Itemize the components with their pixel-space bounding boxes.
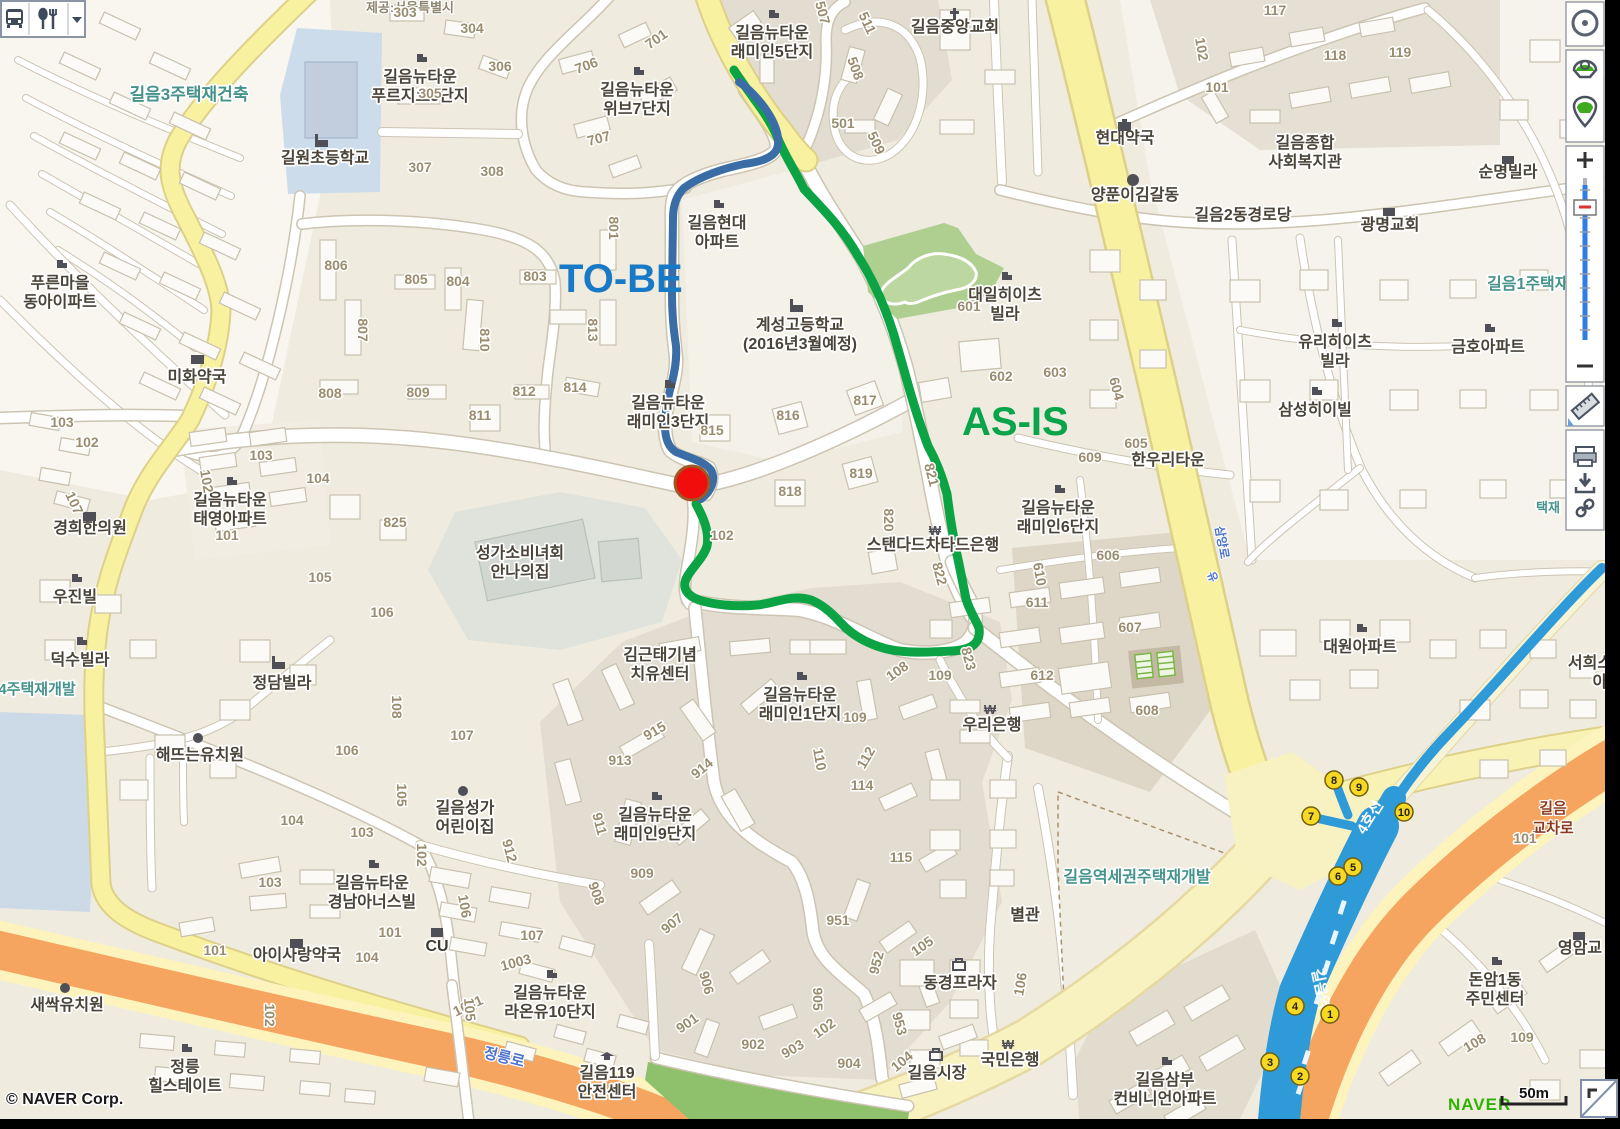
svg-text:612: 612: [1030, 667, 1054, 683]
svg-text:102: 102: [75, 434, 99, 450]
svg-text:904: 904: [837, 1055, 861, 1071]
svg-text:909: 909: [630, 865, 654, 881]
svg-text:816: 816: [776, 407, 800, 423]
svg-text:양푼이김갈동: 양푼이김갈동: [1091, 185, 1180, 204]
svg-text:101: 101: [1513, 830, 1537, 846]
svg-text:501: 501: [831, 115, 855, 131]
svg-text:103: 103: [249, 447, 273, 463]
svg-text:길음뉴타운: 길음뉴타운: [600, 81, 674, 99]
svg-text:307: 307: [408, 159, 432, 175]
svg-text:814: 814: [563, 379, 587, 395]
svg-text:4주택재개발: 4주택재개발: [0, 680, 76, 698]
svg-text:래미인5단지: 래미인5단지: [731, 43, 814, 61]
svg-text:3: 3: [1267, 1057, 1273, 1069]
svg-text:818: 818: [778, 483, 802, 499]
svg-text:109: 109: [928, 667, 952, 683]
svg-text:951: 951: [826, 912, 850, 928]
svg-text:4: 4: [1292, 1001, 1299, 1013]
svg-text:104: 104: [306, 470, 330, 486]
svg-text:806: 806: [324, 257, 348, 273]
svg-text:101: 101: [1205, 79, 1229, 95]
svg-text:807: 807: [355, 318, 371, 342]
svg-text:603: 603: [1043, 364, 1067, 380]
svg-text:래미인1단지: 래미인1단지: [759, 705, 842, 723]
svg-text:103: 103: [350, 824, 374, 840]
svg-text:길음: 길음: [1539, 800, 1567, 817]
svg-text:107: 107: [450, 727, 474, 743]
svg-text:CU: CU: [425, 938, 448, 955]
svg-text:김근태기념: 김근태기념: [623, 645, 697, 664]
svg-text:길음뉴타운: 길음뉴타운: [193, 491, 267, 509]
svg-text:동경프라자: 동경프라자: [923, 974, 997, 992]
svg-text:국민은행: 국민은행: [981, 1051, 1040, 1069]
svg-text:동아이파트: 동아이파트: [23, 293, 97, 311]
svg-text:길음현대: 길음현대: [688, 213, 747, 232]
svg-text:영암교: 영암교: [1558, 938, 1602, 957]
svg-text:광명교회: 광명교회: [1361, 215, 1420, 234]
svg-text:106: 106: [335, 742, 359, 758]
svg-text:새싹유치원: 새싹유치원: [30, 996, 104, 1014]
svg-text:104: 104: [280, 812, 304, 828]
svg-text:101: 101: [378, 924, 402, 940]
svg-text:우리은행: 우리은행: [963, 716, 1022, 734]
svg-text:미화약국: 미화약국: [168, 367, 227, 386]
svg-text:905: 905: [810, 987, 826, 1011]
svg-text:105: 105: [308, 569, 332, 585]
svg-text:810: 810: [477, 328, 493, 352]
svg-text:교차로: 교차로: [1532, 820, 1574, 837]
svg-text:(2016년3월예정): (2016년3월예정): [743, 334, 857, 353]
svg-text:605: 605: [1124, 435, 1148, 451]
svg-text:118: 118: [1324, 47, 1347, 63]
svg-text:치유센터: 치유센터: [631, 665, 690, 683]
svg-text:108: 108: [389, 695, 405, 719]
svg-text:2: 2: [1297, 1071, 1303, 1083]
svg-text:825: 825: [383, 514, 407, 530]
svg-text:102: 102: [262, 1003, 278, 1027]
svg-text:택재: 택재: [1536, 500, 1560, 515]
svg-text:© NAVER Corp.: © NAVER Corp.: [6, 1091, 123, 1108]
svg-text:804: 804: [446, 273, 470, 289]
svg-text:119: 119: [1389, 44, 1412, 60]
svg-text:820: 820: [881, 508, 897, 532]
svg-text:라온유10단지: 라온유10단지: [504, 1003, 595, 1021]
svg-text:돈암1동: 돈암1동: [1468, 970, 1521, 989]
svg-text:주민센터: 주민센터: [1466, 990, 1525, 1008]
svg-text:808: 808: [318, 385, 342, 401]
svg-text:해뜨는유치원: 해뜨는유치원: [156, 746, 244, 764]
svg-text:115: 115: [890, 849, 913, 865]
svg-text:102: 102: [414, 843, 430, 867]
svg-text:50m: 50m: [1519, 1085, 1549, 1102]
svg-text:길음뉴타운: 길음뉴타운: [631, 394, 705, 412]
svg-text:106: 106: [370, 604, 394, 620]
svg-text:빌라: 빌라: [990, 305, 1020, 323]
svg-text:303: 303: [393, 4, 417, 20]
svg-text:813: 813: [585, 318, 601, 342]
svg-text:안전센터: 안전센터: [578, 1083, 637, 1101]
svg-text:306: 306: [488, 58, 512, 74]
svg-text:811: 811: [469, 407, 492, 423]
svg-text:길음3주택재건축: 길음3주택재건축: [130, 85, 249, 104]
svg-text:래미인6단지: 래미인6단지: [1017, 518, 1100, 536]
svg-text:길음성가: 길음성가: [436, 799, 495, 817]
svg-text:사회복지관: 사회복지관: [1268, 152, 1342, 171]
svg-text:덕수빌라: 덕수빌라: [51, 651, 110, 669]
svg-text:순명빌라: 순명빌라: [1479, 163, 1538, 181]
svg-text:길음뉴타운: 길음뉴타운: [618, 806, 692, 824]
svg-text:117: 117: [1264, 2, 1287, 18]
svg-text:809: 809: [406, 384, 430, 400]
svg-text:길음시장: 길음시장: [908, 1064, 967, 1082]
svg-text:1: 1: [1327, 1009, 1333, 1021]
svg-text:304: 304: [460, 20, 484, 36]
svg-text:815: 815: [700, 422, 724, 438]
svg-text:601: 601: [957, 298, 981, 314]
svg-text:스탠다드차타드은행: 스탠다드차타드은행: [867, 536, 999, 554]
svg-text:AS-IS: AS-IS: [962, 400, 1069, 444]
svg-text:812: 812: [512, 383, 536, 399]
svg-text:5: 5: [1350, 862, 1356, 874]
svg-text:한우리타운: 한우리타운: [1131, 450, 1205, 469]
svg-text:103: 103: [50, 414, 74, 430]
svg-text:길음종합: 길음종합: [1276, 134, 1335, 152]
svg-text:104: 104: [355, 949, 379, 965]
svg-text:308: 308: [480, 163, 504, 179]
svg-text:푸른마을: 푸른마을: [31, 274, 90, 292]
svg-text:정릉: 정릉: [170, 1058, 200, 1076]
svg-text:101: 101: [203, 942, 227, 958]
svg-text:태영아파트: 태영아파트: [193, 510, 267, 528]
svg-text:계성고등학교: 계성고등학교: [756, 315, 845, 334]
svg-text:114: 114: [851, 777, 874, 793]
svg-text:7: 7: [1308, 811, 1314, 823]
svg-text:길음뉴타운: 길음뉴타운: [763, 686, 837, 704]
svg-text:102: 102: [710, 527, 734, 543]
svg-text:10: 10: [1398, 807, 1410, 819]
svg-text:길음삼부: 길음삼부: [1136, 1071, 1195, 1089]
svg-text:금호아파트: 금호아파트: [1451, 338, 1525, 356]
svg-text:삼성히이빌: 삼성히이빌: [1278, 401, 1352, 419]
svg-text:경남아너스빌: 경남아너스빌: [328, 893, 416, 911]
svg-text:103: 103: [258, 874, 282, 890]
svg-text:아파트: 아파트: [695, 233, 739, 251]
svg-text:위브7단지: 위브7단지: [603, 100, 671, 118]
svg-text:길음뉴타운: 길음뉴타운: [735, 24, 809, 42]
svg-text:₩: ₩: [984, 702, 997, 717]
svg-text:길음역세권주택재개발: 길음역세권주택재개발: [1063, 867, 1210, 886]
svg-text:902: 902: [741, 1036, 765, 1052]
svg-text:805: 805: [404, 271, 428, 287]
svg-text:래미인9단지: 래미인9단지: [614, 825, 697, 843]
svg-text:길음뉴타운: 길음뉴타운: [335, 874, 409, 892]
svg-text:길음119: 길음119: [579, 1064, 634, 1082]
svg-text:9: 9: [1356, 782, 1362, 794]
svg-text:819: 819: [849, 465, 873, 481]
svg-text:컨비니언아파트: 컨비니언아파트: [1113, 1090, 1216, 1108]
svg-text:109: 109: [1510, 1029, 1534, 1045]
svg-text:611: 611: [1026, 594, 1049, 610]
svg-text:105: 105: [461, 997, 479, 1022]
svg-text:힐스테이트: 힐스테이트: [148, 1076, 222, 1095]
svg-text:별관: 별관: [1010, 906, 1040, 924]
svg-text:성가소비녀회: 성가소비녀회: [476, 543, 564, 562]
svg-text:우진빌: 우진빌: [53, 588, 97, 606]
svg-text:606: 606: [1096, 547, 1120, 563]
svg-text:길음뉴타운: 길음뉴타운: [513, 984, 587, 1002]
svg-text:105: 105: [394, 783, 410, 807]
svg-text:607: 607: [1118, 619, 1142, 635]
svg-text:305: 305: [418, 85, 442, 101]
svg-text:유리히이츠: 유리히이츠: [1298, 333, 1372, 351]
svg-text:801: 801: [606, 216, 622, 240]
svg-text:8: 8: [1331, 775, 1337, 787]
svg-text:TO-BE: TO-BE: [559, 257, 683, 301]
svg-text:길음2동경로당: 길음2동경로당: [1194, 206, 1291, 224]
svg-text:6: 6: [1335, 871, 1341, 883]
svg-text:101: 101: [215, 527, 239, 543]
svg-text:913: 913: [608, 752, 632, 768]
svg-text:래미인3단지: 래미인3단지: [627, 413, 710, 431]
svg-text:803: 803: [523, 268, 547, 284]
svg-text:길음뉴타운: 길음뉴타운: [383, 68, 457, 86]
svg-text:빌라: 빌라: [1320, 352, 1350, 370]
svg-text:109: 109: [843, 709, 867, 725]
svg-text:₩: ₩: [929, 523, 942, 538]
svg-text:길음뉴타운: 길음뉴타운: [1021, 499, 1095, 517]
svg-text:길음1주택재: 길음1주택재: [1487, 275, 1570, 293]
svg-text:정담빌라: 정담빌라: [253, 674, 312, 692]
svg-text:107: 107: [520, 927, 544, 943]
svg-text:어린이집: 어린이집: [436, 817, 495, 836]
svg-text:안나의집: 안나의집: [491, 562, 550, 581]
svg-text:₩: ₩: [1002, 1037, 1015, 1052]
svg-text:길원초등학교: 길원초등학교: [281, 149, 370, 167]
svg-text:608: 608: [1135, 702, 1159, 718]
svg-text:대원아파트: 대원아파트: [1323, 638, 1397, 656]
svg-text:817: 817: [853, 392, 877, 408]
svg-text:602: 602: [989, 368, 1013, 384]
svg-text:609: 609: [1078, 449, 1102, 465]
